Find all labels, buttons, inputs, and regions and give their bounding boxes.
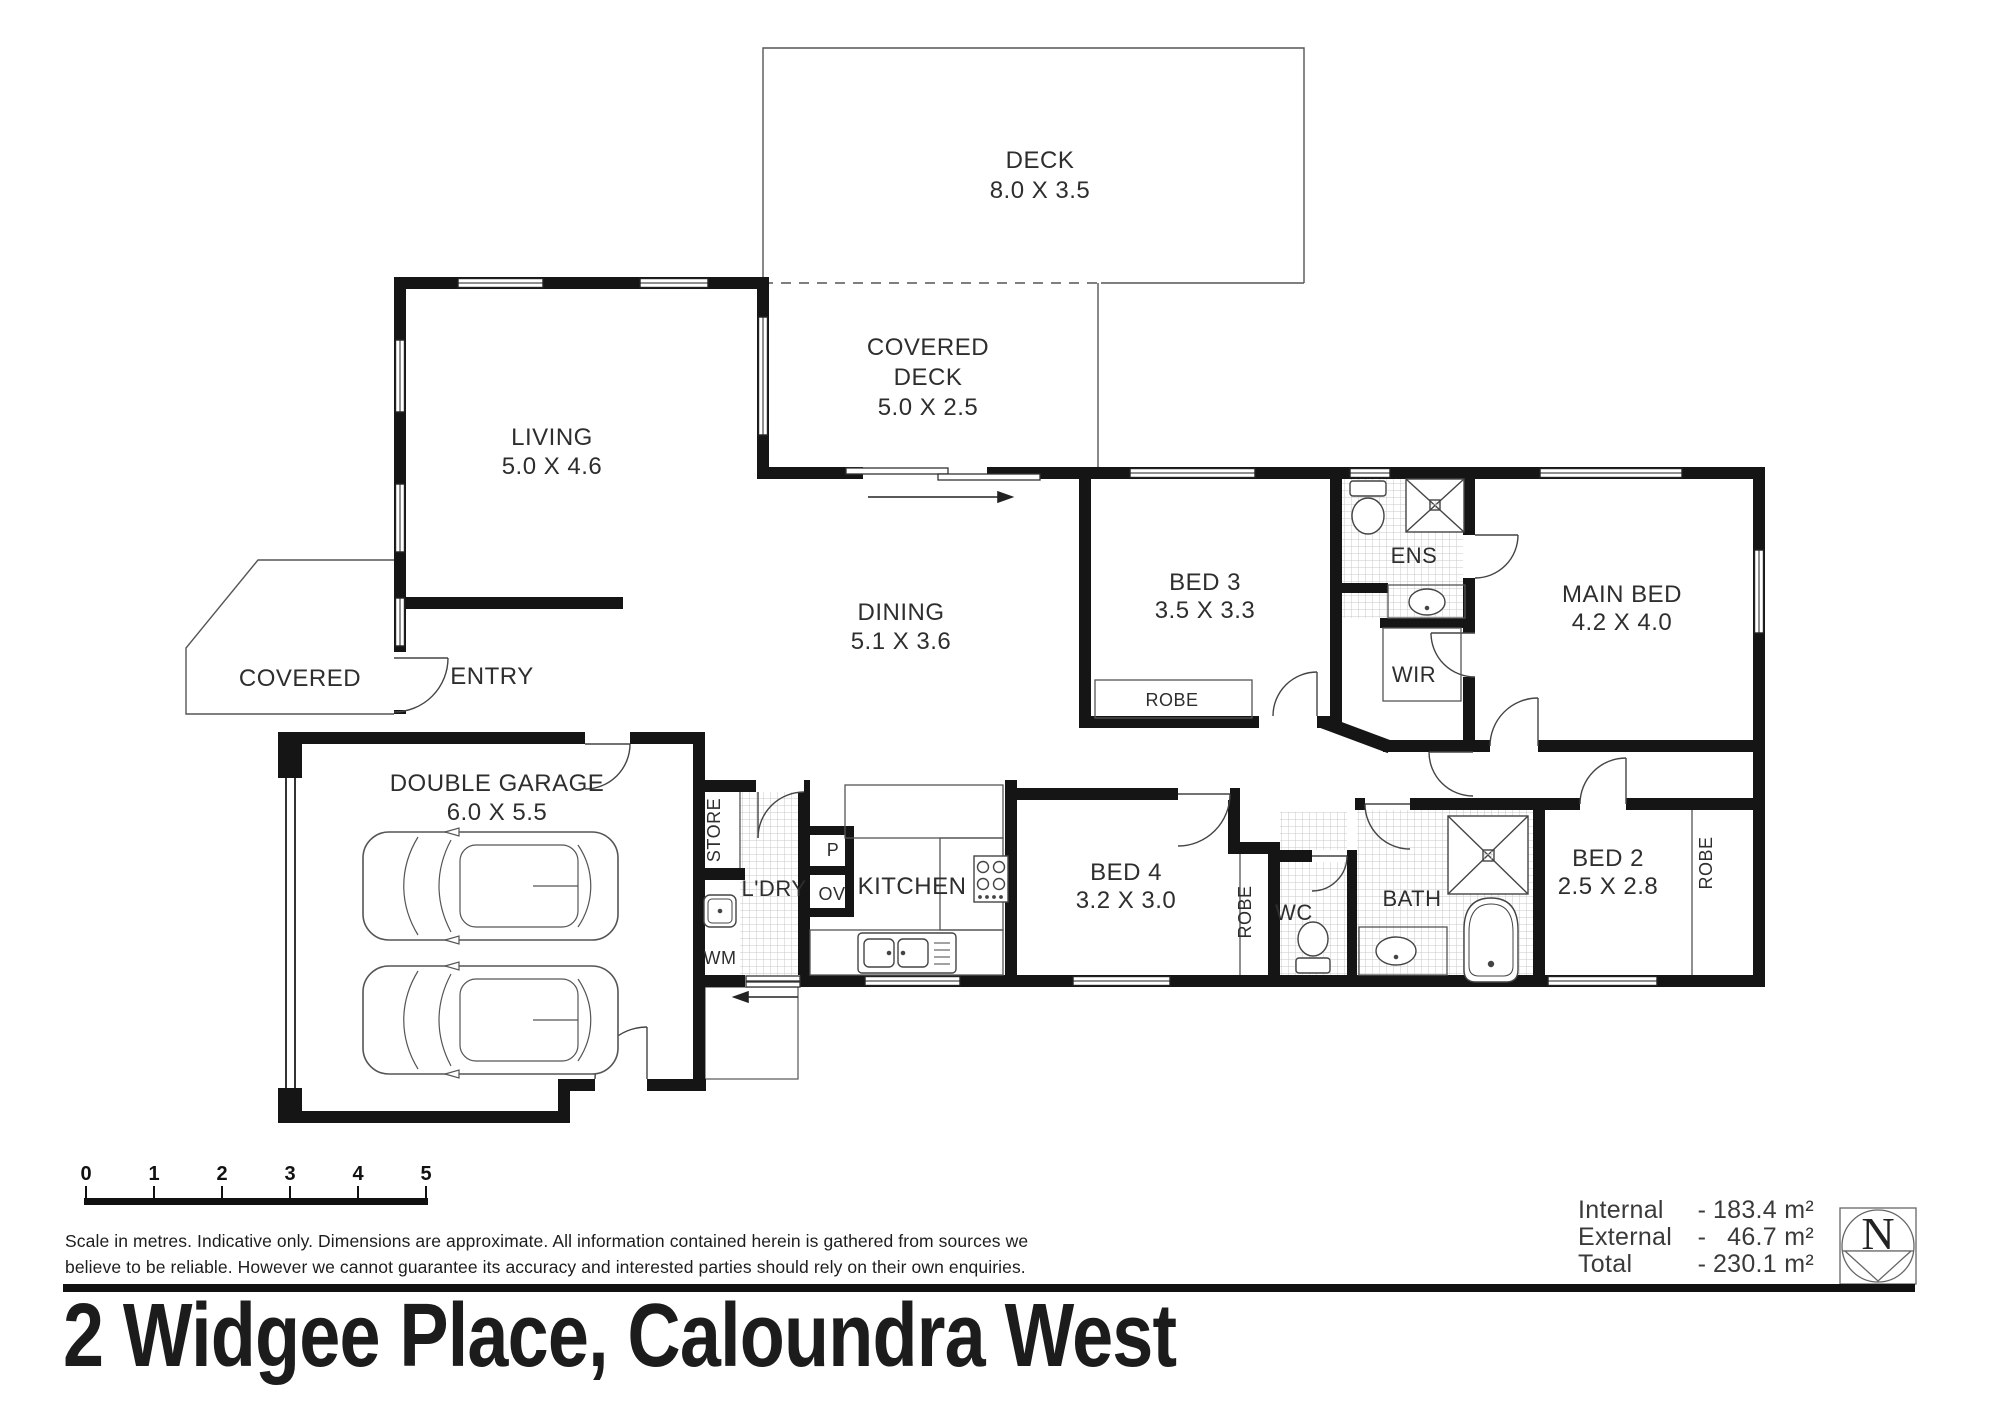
area-row-sep: - (1698, 1250, 1707, 1278)
car-icon (363, 962, 618, 1078)
car-icon (363, 828, 618, 944)
ens-shower-icon (1406, 479, 1464, 532)
north-compass-icon: N (1840, 1208, 1916, 1284)
label-bed4: BED 4 (1090, 859, 1162, 886)
scale-tick-3: 3 (284, 1163, 295, 1185)
label-bed3-dims: 3.5 X 3.3 (1155, 597, 1256, 624)
ens-toilet-icon (1350, 481, 1386, 534)
bath-basin-icon (1376, 937, 1416, 965)
area-row-label: Total (1578, 1250, 1632, 1278)
label-wir: WIR (1392, 662, 1436, 687)
scale-tick-0: 0 (80, 1163, 91, 1185)
scale-bar: 0 1 2 3 4 5 (80, 1163, 431, 1205)
label-deck-dims: 8.0 X 3.5 (990, 177, 1091, 204)
bed3-door (1273, 672, 1317, 716)
label-robe-bed2: ROBE (1696, 836, 1716, 889)
area-row-value: 183.4 m² (1713, 1196, 1814, 1224)
disclaimer-line-2: believe to be reliable. However we canno… (65, 1257, 1026, 1277)
area-row-value: 230.1 m² (1713, 1250, 1814, 1278)
label-ens: ENS (1391, 543, 1438, 568)
label-main-bed-dims: 4.2 X 4.0 (1572, 609, 1673, 636)
label-pantry: P (827, 840, 840, 860)
deck-outline (763, 48, 1304, 467)
scale-tick-2: 2 (216, 1163, 227, 1185)
disclaimer-line-1: Scale in metres. Indicative only. Dimens… (65, 1231, 1028, 1251)
label-bed4-dims: 3.2 X 3.0 (1076, 887, 1177, 914)
label-wm: WM (704, 948, 737, 968)
area-row-sep: - (1698, 1223, 1707, 1251)
compass-letter: N (1861, 1208, 1894, 1259)
bathtub-icon (1464, 898, 1518, 982)
label-bed2: BED 2 (1572, 845, 1644, 872)
page-title: 2 Widgee Place, Caloundra West (63, 1286, 1177, 1386)
ens-basin-icon (1409, 589, 1445, 615)
label-dining-dims: 5.1 X 3.6 (851, 628, 952, 655)
label-deck: DECK (1006, 147, 1075, 174)
label-entry: ENTRY (450, 663, 533, 690)
wc-toilet-icon (1296, 922, 1330, 973)
laundry-tub-icon (704, 895, 736, 927)
scale-tick-4: 4 (352, 1163, 364, 1185)
kitchen-sink-icon (858, 933, 956, 973)
floorplan: DECK 8.0 X 3.5 COVERED DECK 5.0 X 2.5 LI… (0, 0, 2000, 1414)
floorplan-page: DECK 8.0 X 3.5 COVERED DECK 5.0 X 2.5 LI… (0, 0, 2000, 1414)
label-dining: DINING (858, 599, 945, 626)
label-robe-bed3: ROBE (1145, 690, 1198, 710)
label-covered-deck-dims: 5.0 X 2.5 (878, 394, 979, 421)
label-garage-dims: 6.0 X 5.5 (447, 799, 548, 826)
ens-door (1475, 535, 1518, 578)
label-covered-deck-1: COVERED (867, 334, 989, 361)
cooktop-icon (974, 856, 1008, 902)
scale-tick-5: 5 (420, 1163, 431, 1185)
main-bed-door (1490, 698, 1538, 746)
label-bed2-dims: 2.5 X 2.8 (1558, 873, 1659, 900)
label-kitchen: KITCHEN (858, 873, 967, 900)
label-main-bed: MAIN BED (1562, 581, 1682, 608)
label-bed3: BED 3 (1169, 569, 1241, 596)
label-bath: BATH (1382, 886, 1441, 911)
bed2-door (1580, 758, 1626, 804)
disclaimer: Scale in metres. Indicative only. Dimens… (65, 1231, 1028, 1277)
label-living-dims: 5.0 X 4.6 (502, 453, 603, 480)
rear-landing-outline (705, 987, 798, 1079)
label-store: STORE (704, 798, 724, 862)
label-living: LIVING (511, 424, 593, 451)
bath-shower-icon (1448, 816, 1528, 894)
hall-door (1429, 752, 1473, 796)
label-garage: DOUBLE GARAGE (390, 770, 605, 797)
label-ldry: L'DRY (742, 876, 807, 901)
scale-tick-1: 1 (148, 1163, 159, 1185)
area-table: Internal - 183.4 m² External - 46.7 m² T… (1578, 1196, 1814, 1278)
label-robe-bed4: ROBE (1235, 885, 1255, 938)
label-porch: COVERED (239, 665, 361, 692)
label-wc: WC (1275, 900, 1313, 925)
area-row-value: 46.7 m² (1727, 1223, 1814, 1251)
angled-wall (1323, 722, 1390, 747)
garage-door (286, 778, 295, 1088)
label-oven: OV (818, 884, 845, 904)
label-covered-deck-2: DECK (894, 364, 963, 391)
area-row-sep: - (1698, 1196, 1707, 1224)
bed4-door (1178, 794, 1230, 846)
area-row-label: Internal (1578, 1196, 1664, 1224)
area-row-label: External (1578, 1223, 1672, 1251)
